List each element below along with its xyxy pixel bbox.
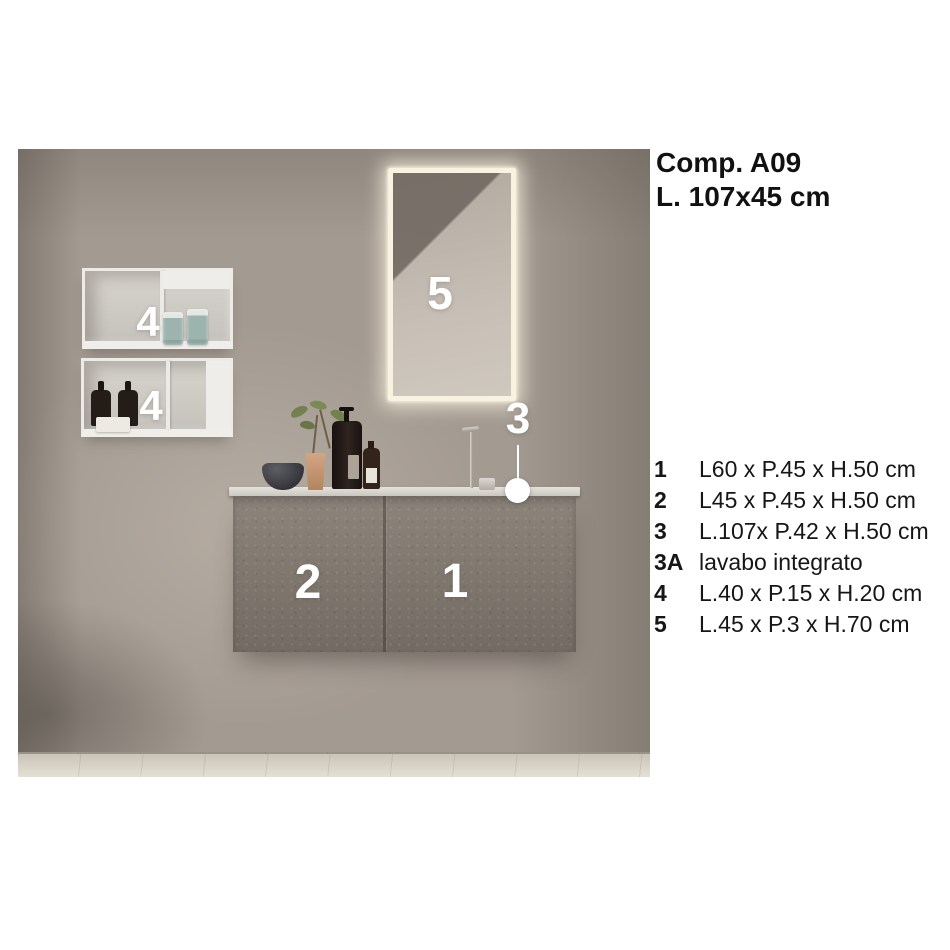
- composition-size: L. 107x45 cm: [656, 180, 830, 214]
- decor-small-bottle: [363, 448, 380, 489]
- legend-row: 3A lavabo integrato: [654, 549, 929, 580]
- composition-title: Comp. A09 L. 107x45 cm: [656, 146, 830, 214]
- decor-bowl: [262, 463, 304, 490]
- plant-leaf: [289, 403, 309, 419]
- bottle-label: [366, 468, 377, 483]
- legend-row: 4 L.40 x P.15 x H.20 cm: [654, 580, 929, 611]
- label-shelf-bottom-4: 4: [139, 385, 162, 427]
- legend-item-text: L60 x P.45 x H.50 cm: [699, 456, 916, 483]
- label-shelf-top-4: 4: [136, 301, 159, 343]
- faucet: [470, 432, 473, 488]
- catalog-page: 5 4 4 2 1 3 Comp. A09 L. 107x45 cm 1 L60…: [0, 0, 950, 950]
- shelf-panel: [163, 271, 230, 289]
- label-door-right-1: 1: [442, 558, 469, 606]
- faucet-handle: [462, 426, 479, 432]
- label-countertop-3: 3: [506, 397, 530, 441]
- legend-item-number: 5: [654, 611, 699, 638]
- legend-row: 3 L.107x P.42 x H.50 cm: [654, 518, 929, 549]
- legend-item-text: L.40 x P.15 x H.20 cm: [699, 580, 922, 607]
- door-gap: [383, 496, 386, 652]
- composition-code: Comp. A09: [656, 146, 830, 180]
- floor: [18, 752, 650, 777]
- decor-plant-pot: [304, 453, 327, 490]
- legend-row: 1 L60 x P.45 x H.50 cm: [654, 456, 929, 487]
- white-jar: [96, 417, 130, 432]
- callout-3-dot: [505, 478, 530, 503]
- legend-item-number: 4: [654, 580, 699, 607]
- legend-item-number: 3: [654, 518, 699, 545]
- legend-item-text: L.107x P.42 x H.50 cm: [699, 518, 929, 545]
- plant-stem: [319, 409, 331, 448]
- shelf-panel: [206, 361, 230, 429]
- product-photo: 5 4 4 2 1 3: [18, 149, 650, 777]
- label-mirror-5: 5: [427, 270, 453, 316]
- legend-item-text: L45 x P.45 x H.50 cm: [699, 487, 916, 514]
- decor-cup: [479, 478, 495, 490]
- legend-item-number: 3A: [654, 549, 699, 576]
- decor-soap-bottle: [332, 421, 362, 489]
- dimensions-legend: 1 L60 x P.45 x H.50 cm 2 L45 x P.45 x H.…: [654, 456, 929, 642]
- glass-jar: [187, 309, 208, 345]
- glass-jar: [163, 312, 183, 345]
- plant-leaf: [299, 420, 315, 430]
- bottle-label: [348, 455, 359, 479]
- legend-item-text: lavabo integrato: [699, 549, 863, 576]
- label-door-left-2: 2: [295, 559, 322, 607]
- vanity-cabinet: [233, 496, 576, 652]
- legend-item-text: L.45 x P.3 x H.70 cm: [699, 611, 910, 638]
- plant-stem: [312, 415, 318, 457]
- plant-leaf: [309, 399, 327, 411]
- legend-row: 2 L45 x P.45 x H.50 cm: [654, 487, 929, 518]
- legend-item-number: 1: [654, 456, 699, 483]
- legend-item-number: 2: [654, 487, 699, 514]
- callout-3-line: [517, 445, 519, 479]
- legend-row: 5 L.45 x P.3 x H.70 cm: [654, 611, 929, 642]
- shelf-divider: [166, 361, 170, 429]
